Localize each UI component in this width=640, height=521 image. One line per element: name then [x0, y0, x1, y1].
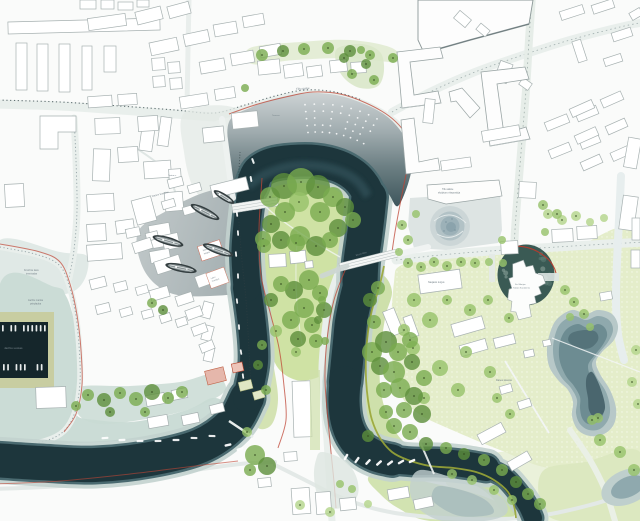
svg-text:Jachtu uostas: Jachtu uostas	[4, 346, 23, 350]
svg-text:Sv. Marijos: Sv. Marijos	[515, 283, 527, 286]
svg-text:Terasos: Terasos	[272, 114, 281, 117]
svg-text:skulpturu ekspozicija: skulpturu ekspozicija	[438, 192, 461, 195]
svg-text:Naujasis turgus: Naujasis turgus	[428, 281, 445, 284]
svg-text:Tiltu aikste: Tiltu aikste	[442, 188, 454, 191]
svg-text:Danes skveras: Danes skveras	[496, 379, 513, 382]
svg-text:Jachtu marina: Jachtu marina	[28, 299, 44, 302]
svg-text:Taikos Karalienes: Taikos Karalienes	[513, 286, 531, 289]
svg-text:terminalas: terminalas	[26, 273, 38, 276]
svg-text:prieplauka: prieplauka	[30, 303, 42, 306]
svg-text:Kruiziniu laivu: Kruiziniu laivu	[24, 269, 39, 272]
svg-text:Teatro a.: Teatro a.	[168, 174, 177, 177]
